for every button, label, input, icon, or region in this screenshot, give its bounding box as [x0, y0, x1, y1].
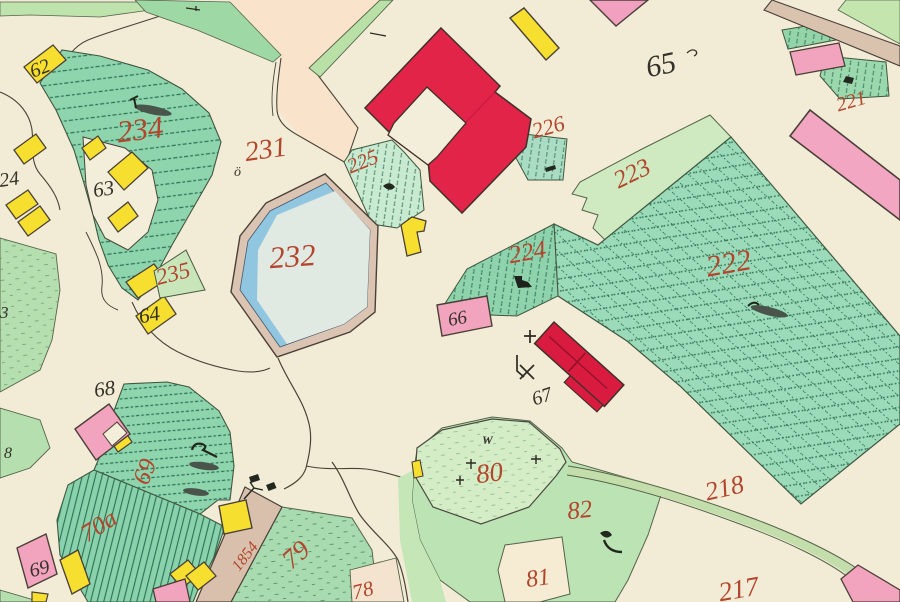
svg-text:231: 231 — [243, 132, 289, 169]
svg-text:8: 8 — [4, 445, 12, 462]
svg-text:68: 68 — [93, 375, 118, 402]
svg-text:234: 234 — [115, 109, 165, 149]
svg-text:24: 24 — [0, 167, 21, 192]
svg-text:80: 80 — [474, 456, 505, 489]
svg-text:3: 3 — [0, 303, 9, 322]
svg-text:63: 63 — [92, 175, 116, 202]
svg-text:232: 232 — [268, 237, 317, 275]
svg-text:82: 82 — [566, 496, 594, 525]
svg-text:ö: ö — [234, 165, 241, 180]
svg-text:81: 81 — [524, 564, 551, 593]
svg-text:W: W — [482, 433, 494, 447]
